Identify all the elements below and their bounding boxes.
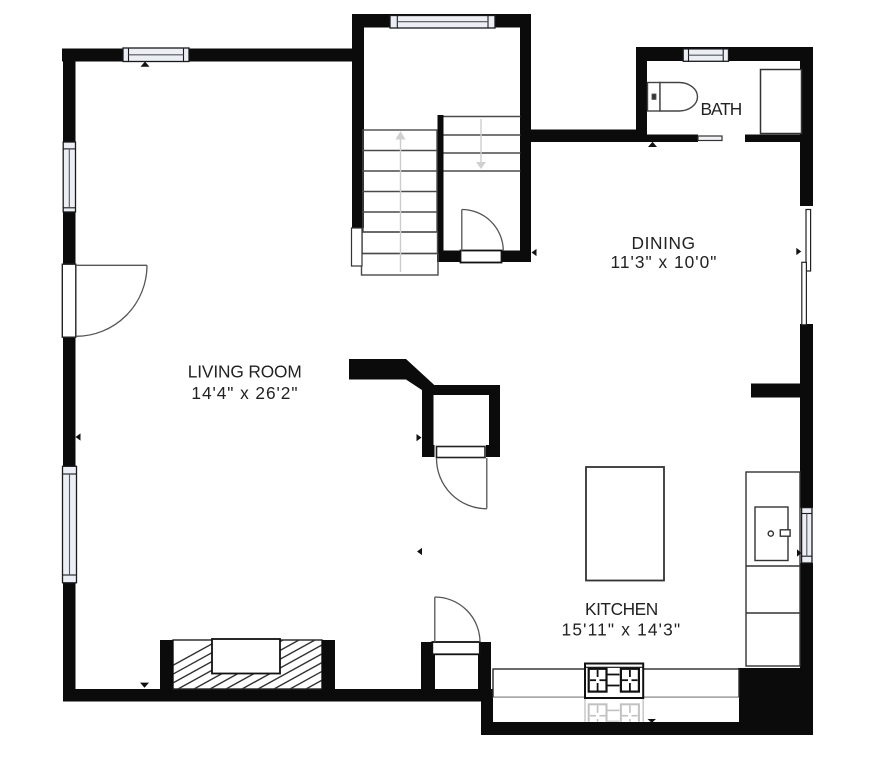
svg-text:15'11" x 14'3": 15'11" x 14'3" [562,619,682,639]
svg-text:BATH: BATH [701,99,742,119]
svg-text:LIVING ROOM: LIVING ROOM [188,362,302,382]
svg-text:11'3" x 10'0": 11'3" x 10'0" [611,252,718,272]
svg-text:DINING: DINING [631,233,695,253]
svg-text:14'4" x 26'2": 14'4" x 26'2" [191,383,298,403]
svg-text:KITCHEN: KITCHEN [585,599,658,619]
